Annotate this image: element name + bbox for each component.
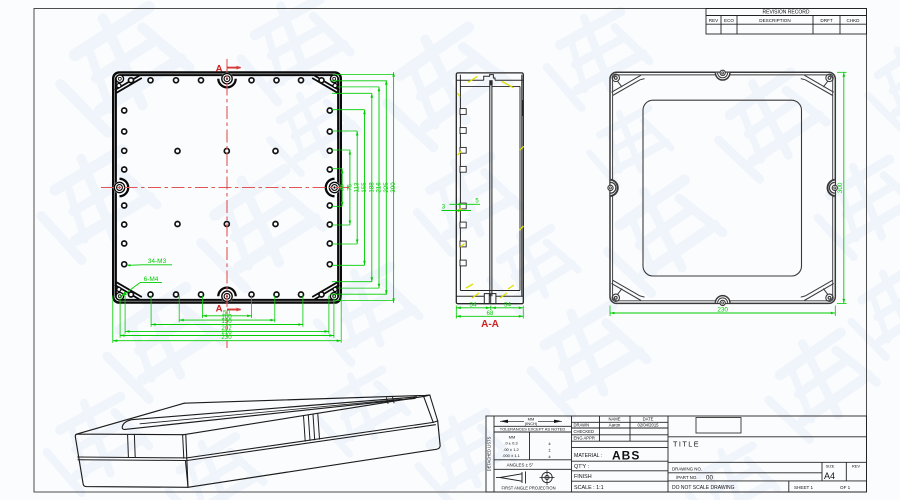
svg-text:DETACHED LISTS: DETACHED LISTS <box>487 436 492 471</box>
svg-text:155: 155 <box>361 182 368 193</box>
svg-text:ABS: ABS <box>612 449 640 463</box>
svg-text:CHKD: CHKD <box>846 18 860 23</box>
svg-text:SIZE: SIZE <box>826 463 835 468</box>
svg-text:300: 300 <box>390 182 397 193</box>
svg-text:6-M4: 6-M4 <box>144 276 159 283</box>
svg-text:230: 230 <box>221 334 232 341</box>
svg-text:FIRST ANGLE PROJECTION: FIRST ANGLE PROJECTION <box>501 486 555 491</box>
svg-text:MATERIAL :: MATERIAL : <box>574 453 602 459</box>
svg-text:216: 216 <box>376 182 383 193</box>
svg-text:NAME: NAME <box>608 417 620 422</box>
svg-text:DRAWN: DRAWN <box>574 423 590 428</box>
svg-text:CHECKED: CHECKED <box>574 429 594 434</box>
svg-text:ENG APPR: ENG APPR <box>574 436 595 441</box>
svg-text:02/04/2015: 02/04/2015 <box>638 423 660 428</box>
svg-text:QT'Y :: QT'Y : <box>574 464 589 470</box>
svg-text:A-A: A-A <box>481 319 499 330</box>
svg-text:DESCRIPTION: DESCRIPTION <box>759 18 790 23</box>
svg-text:225: 225 <box>383 182 390 193</box>
svg-text:A: A <box>216 64 223 75</box>
svg-text:.00 ± 1.2: .00 ± 1.2 <box>503 447 519 452</box>
svg-text:68: 68 <box>487 310 494 317</box>
svg-text:75: 75 <box>346 184 353 191</box>
svg-text:Aaron: Aaron <box>609 423 621 428</box>
svg-text:34: 34 <box>504 301 511 308</box>
svg-text:MM: MM <box>509 434 516 439</box>
svg-text:ANGLES ± 5°: ANGLES ± 5° <box>507 463 534 468</box>
svg-text:DRFT: DRFT <box>820 18 832 23</box>
svg-text:.0 ± 0.3: .0 ± 0.3 <box>504 441 518 446</box>
svg-text:.000 ± 1.1: .000 ± 1.1 <box>502 453 521 458</box>
svg-text:ECO: ECO <box>724 18 734 23</box>
svg-text:FINISH: FINISH <box>574 474 592 480</box>
svg-text:188: 188 <box>368 182 375 193</box>
svg-text:300: 300 <box>837 182 844 193</box>
svg-text:113: 113 <box>354 182 361 192</box>
svg-text:34: 34 <box>470 301 477 308</box>
svg-text:DO NOT SCALE DRAWING: DO NOT SCALE DRAWING <box>672 485 735 491</box>
svg-text:/PART NO.: /PART NO. <box>676 475 697 480</box>
svg-text:SCALE : 1:1: SCALE : 1:1 <box>574 485 604 491</box>
svg-text:38: 38 <box>339 184 346 191</box>
svg-text:A4: A4 <box>824 471 835 481</box>
svg-text:DATE: DATE <box>643 417 654 422</box>
svg-text:REV: REV <box>709 18 719 23</box>
svg-text:DRAWING NO.: DRAWING NO. <box>672 466 702 471</box>
svg-text:(INCH): (INCH) <box>525 421 538 426</box>
svg-text:OF 1: OF 1 <box>840 485 851 490</box>
svg-text:00: 00 <box>706 475 713 482</box>
svg-text:REVISION RECORD: REVISION RECORD <box>763 10 810 16</box>
svg-text:TOLERANCES EXCEPT AS NOTED: TOLERANCES EXCEPT AS NOTED <box>500 427 566 432</box>
svg-text:REV: REV <box>852 464 861 469</box>
svg-text:SHEET 1: SHEET 1 <box>794 485 814 490</box>
svg-text:34-M3: 34-M3 <box>148 258 167 265</box>
svg-text:230: 230 <box>717 306 728 313</box>
svg-text:TITLE: TITLE <box>673 440 700 449</box>
